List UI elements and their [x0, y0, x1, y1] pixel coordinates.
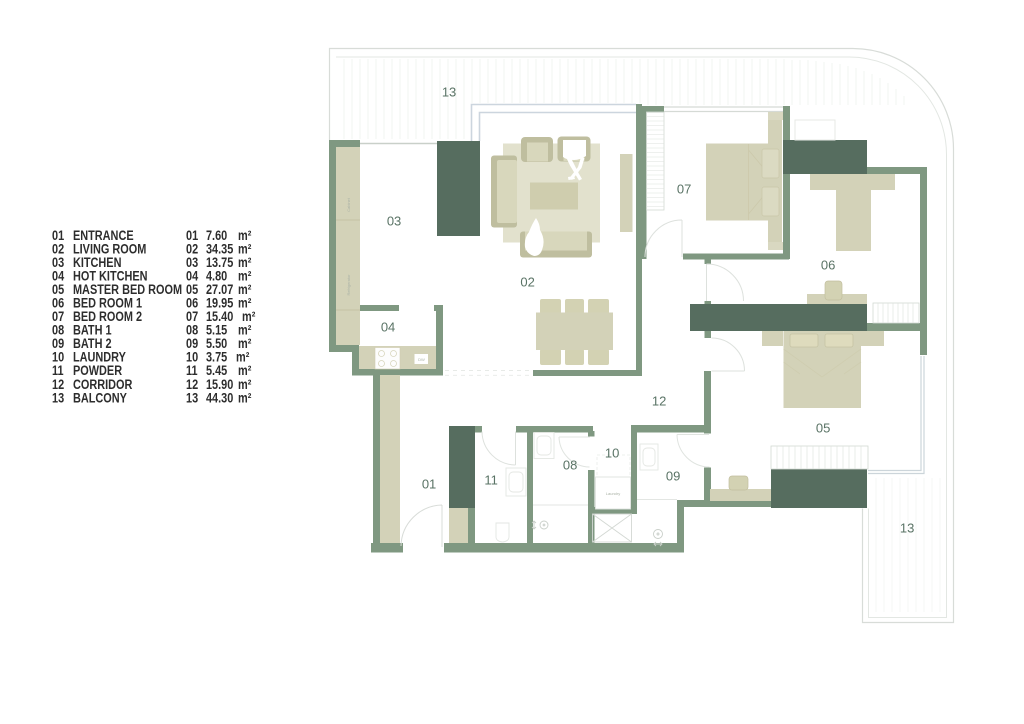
- svg-text:03: 03: [387, 214, 401, 229]
- svg-text:09: 09: [666, 469, 680, 484]
- svg-text:02: 02: [520, 275, 534, 290]
- svg-text:Cabinet: Cabinet: [346, 197, 351, 212]
- svg-text:08: 08: [563, 458, 577, 473]
- svg-text:01: 01: [422, 477, 436, 492]
- svg-text:05: 05: [816, 421, 830, 436]
- svg-text:10: 10: [605, 446, 619, 461]
- svg-text:06: 06: [821, 258, 835, 273]
- svg-text:13: 13: [900, 521, 914, 536]
- svg-text:Refrigerator: Refrigerator: [346, 274, 351, 296]
- svg-text:Laundry: Laundry: [606, 491, 620, 496]
- svg-text:07: 07: [677, 182, 691, 197]
- svg-text:12: 12: [652, 394, 666, 409]
- svg-text:13: 13: [442, 85, 456, 100]
- svg-text:04: 04: [381, 320, 395, 335]
- svg-text:DW: DW: [418, 357, 425, 362]
- svg-text:13BALCONY1344.30m²: 13BALCONY1344.30m²: [52, 390, 251, 406]
- svg-text:11: 11: [484, 473, 498, 488]
